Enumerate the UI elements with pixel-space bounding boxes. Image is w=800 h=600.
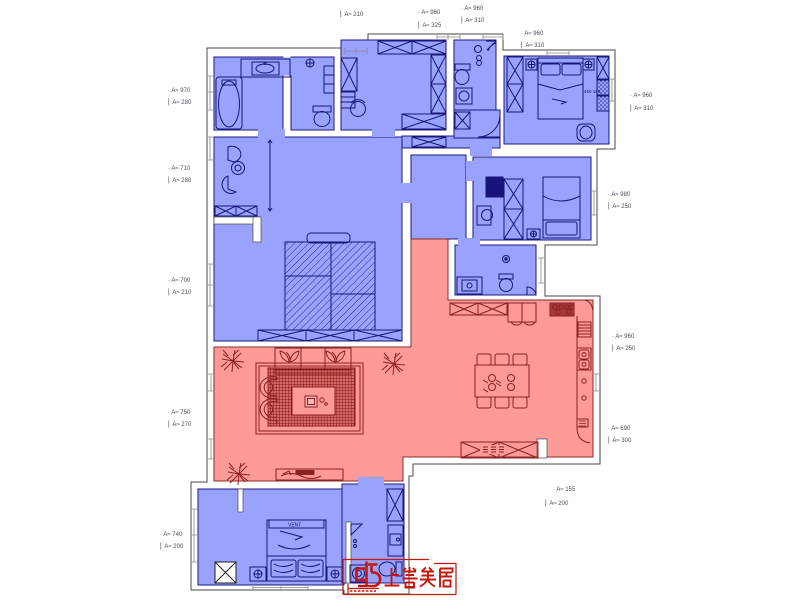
svg-text:· A≈ 980: · A≈ 980: [608, 192, 631, 198]
svg-text:· A≈ 960: · A≈ 960: [521, 31, 544, 37]
svg-text:· A≈ 960: · A≈ 960: [630, 93, 653, 99]
svg-text:· A≈ 690: · A≈ 690: [608, 426, 631, 432]
svg-text:· A≈ 750: · A≈ 750: [168, 410, 191, 416]
svg-text:⎢ A≈ 270: ⎢ A≈ 270: [168, 420, 192, 428]
svg-text:⎢ A≈ 280: ⎢ A≈ 280: [168, 98, 192, 106]
svg-text:· A≈ 960: · A≈ 960: [461, 6, 484, 12]
svg-text:· A≈ 960: · A≈ 960: [612, 334, 635, 340]
svg-text:⎢ A≈ 250: ⎢ A≈ 250: [612, 344, 636, 352]
svg-text:⎢ A≈ 310: ⎢ A≈ 310: [461, 16, 485, 24]
svg-text:⎢ A≈ 210: ⎢ A≈ 210: [168, 288, 192, 296]
svg-text:⎢ A≈ 210: ⎢ A≈ 210: [340, 10, 364, 18]
svg-text:⎢ A≈ 310: ⎢ A≈ 310: [630, 104, 654, 112]
svg-text:· A≈ 710: · A≈ 710: [168, 166, 191, 172]
svg-text:⎢ A≈ 300: ⎢ A≈ 300: [608, 436, 632, 444]
svg-text:⎢ A≈ 200: ⎢ A≈ 200: [160, 542, 184, 550]
svg-text:⎢ A≈ 250: ⎢ A≈ 250: [608, 202, 632, 210]
svg-text:450 150: 450 150: [584, 89, 601, 94]
svg-text:· A≈ 700: · A≈ 700: [168, 278, 191, 284]
svg-text:· A≈ 970: · A≈ 970: [168, 88, 191, 94]
svg-text:⎢ A≈ 280: ⎢ A≈ 280: [168, 176, 192, 184]
svg-text:· A≈ 740: · A≈ 740: [160, 532, 183, 538]
svg-text:⎢ A≈ 200: ⎢ A≈ 200: [545, 499, 569, 507]
svg-text:· A≈ 155: · A≈ 155: [553, 487, 576, 493]
svg-text:VENT: VENT: [288, 523, 301, 529]
svg-text:· A≈ 960: · A≈ 960: [418, 10, 441, 16]
svg-text:⎢ A≈ 310: ⎢ A≈ 310: [521, 41, 545, 49]
svg-text:⎢ A≈ 325: ⎢ A≈ 325: [418, 21, 442, 29]
